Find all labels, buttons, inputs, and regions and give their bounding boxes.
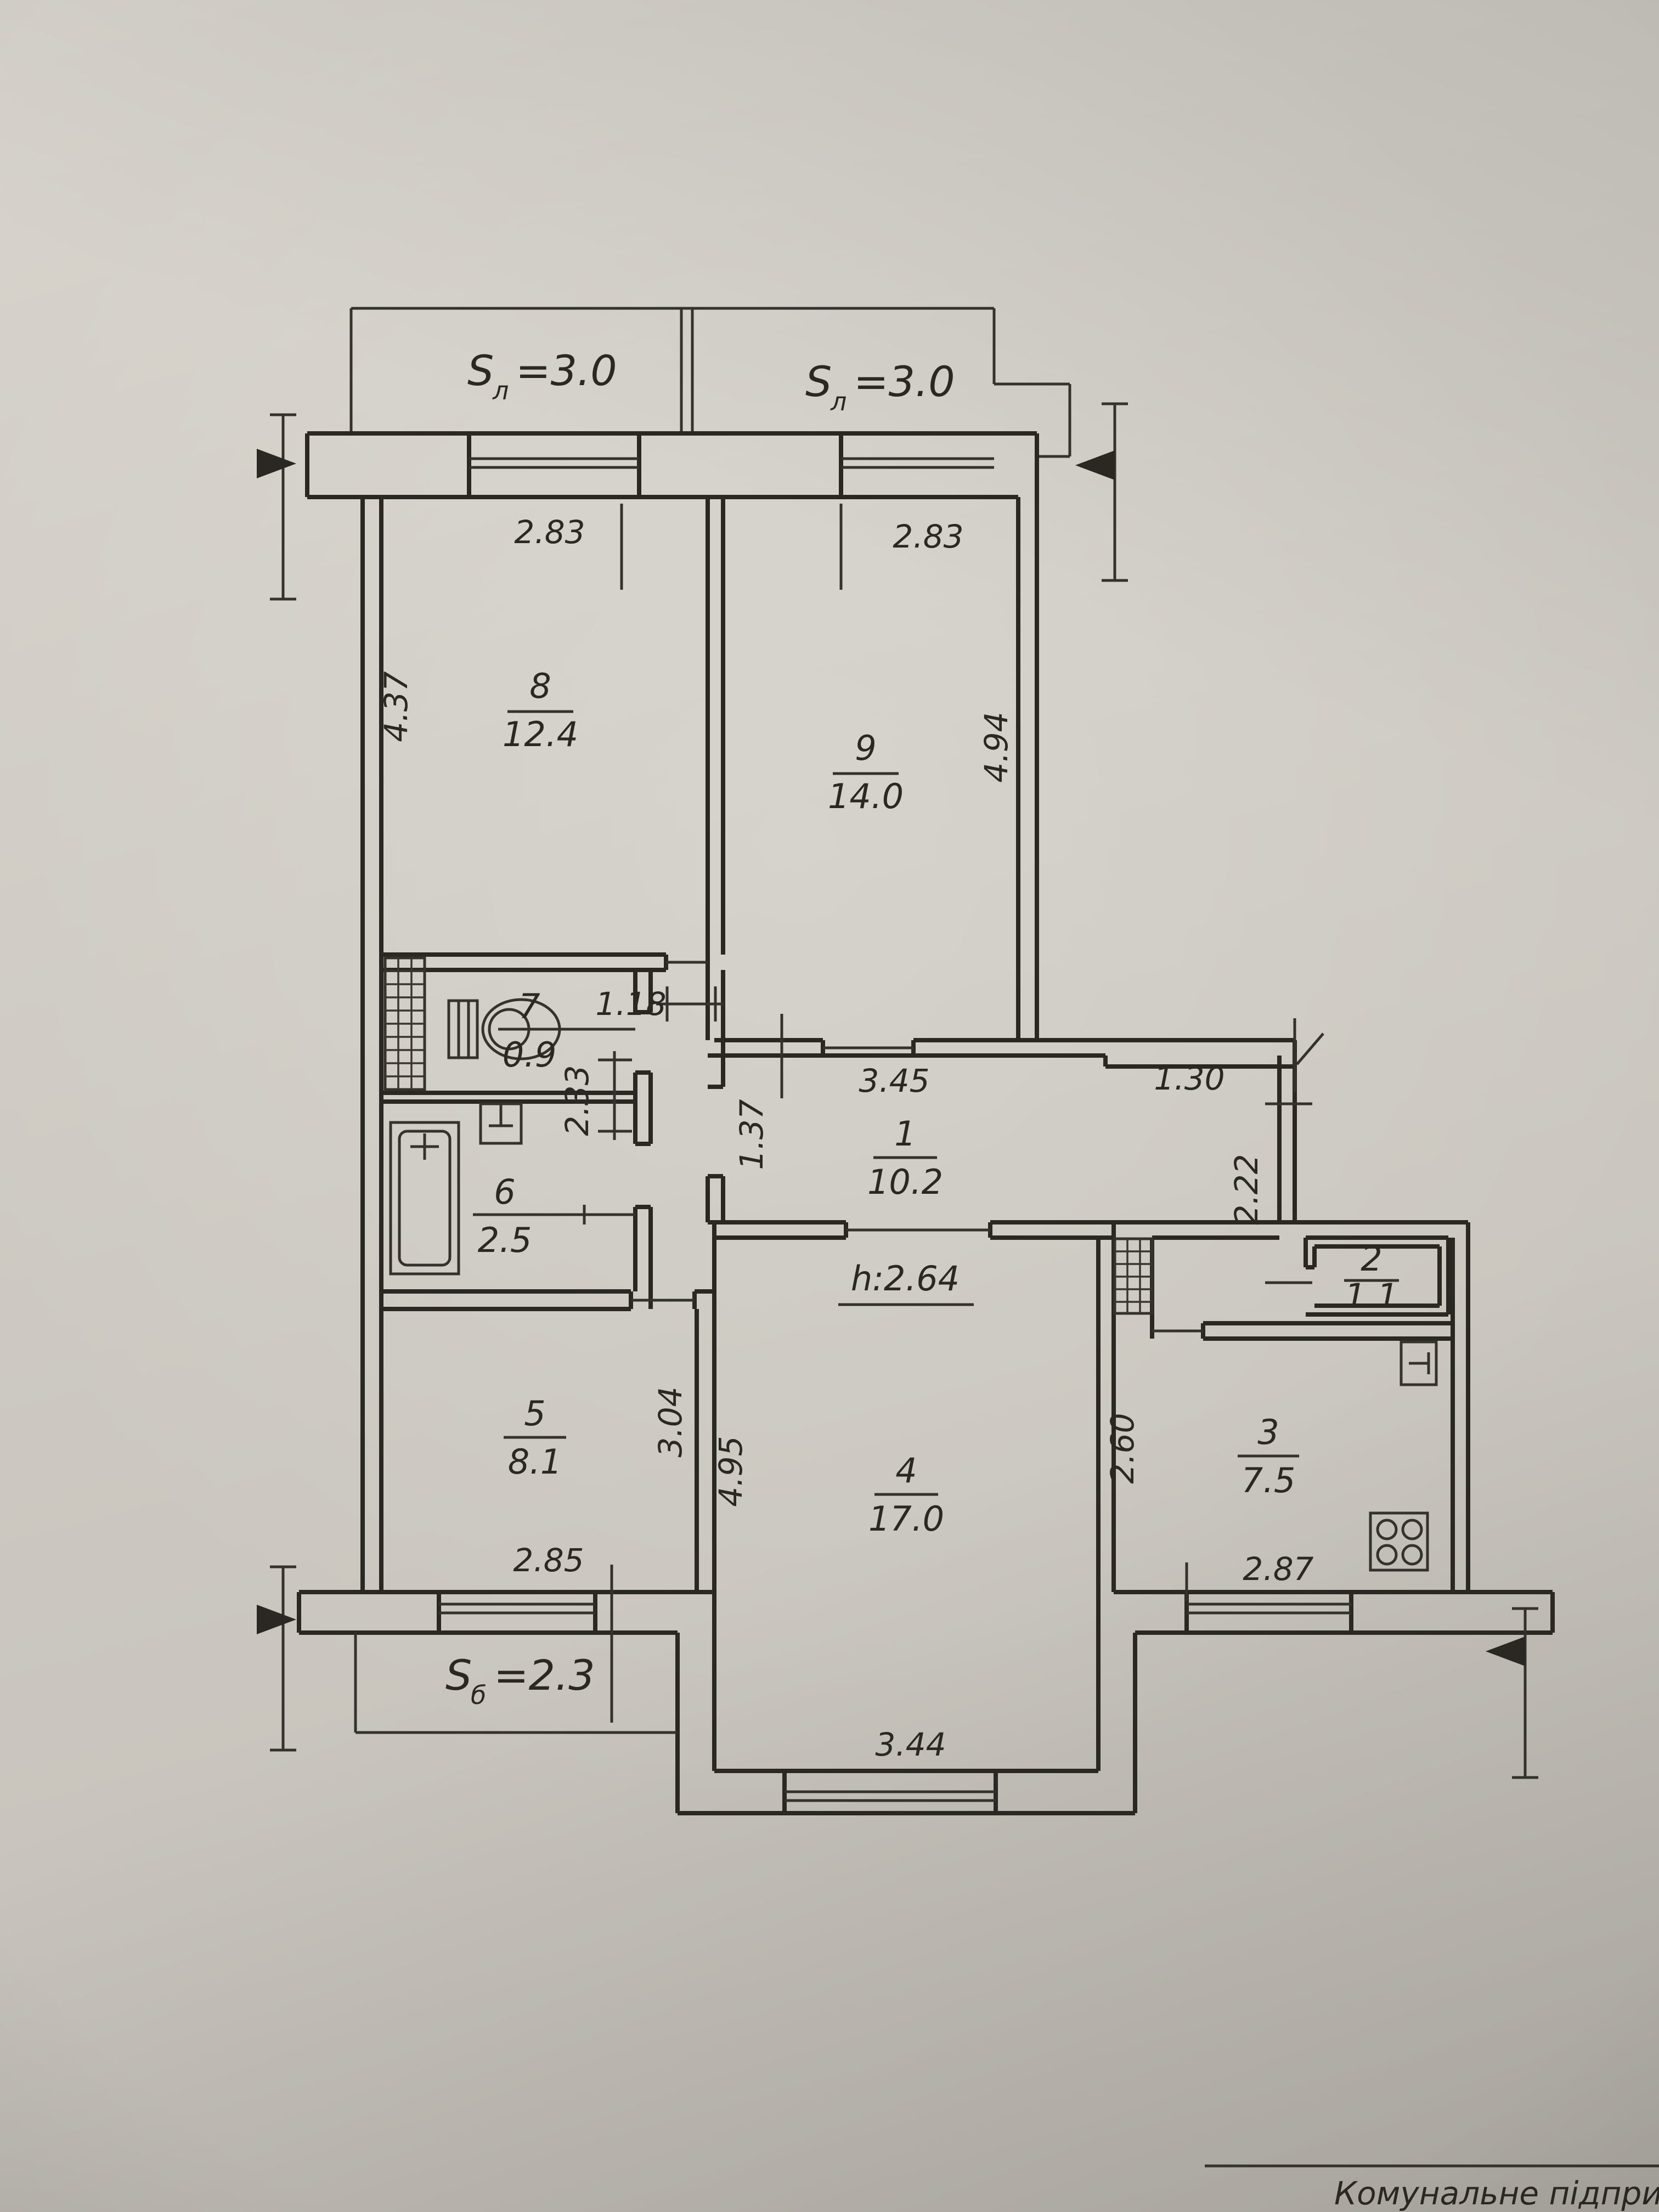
photographed-floor-plan: { "colors": { "paper": "#d0ccc5", "ink":… [0,0,1659,2212]
title-block: Комунальне підприємст [1205,2166,1659,2212]
window-room4 [785,1792,996,1801]
room-3-label: 3 7.5 [1238,1412,1299,1500]
svg-text:14.0: 14.0 [828,776,904,816]
dim-room4-depth: 4.95 [712,1436,749,1506]
dim-room4-window: 3.44 [875,1726,946,1763]
stove-icon [1370,1513,1427,1570]
svg-text:7.5: 7.5 [1242,1460,1296,1500]
loggia-left-label: S л =3.0 [467,346,617,405]
svg-text:2: 2 [1361,1239,1382,1279]
loggia-right-symbol: S [805,357,832,406]
svg-text:2.5: 2.5 [478,1220,532,1260]
svg-text:8: 8 [529,666,551,706]
svg-text:12.4: 12.4 [503,714,578,754]
loggia-left-subscript: л [492,376,509,405]
window-room8 [469,459,639,467]
room-2-label: 2 1.1 [1344,1239,1399,1316]
vent-shaft-icon [1115,1239,1152,1313]
dim-hall-right-width: 1.30 [1154,1060,1224,1097]
exterior-walls [299,433,1553,1813]
balcony-symbol: S [445,1651,472,1700]
dim-loggia-left: 2.83 [514,513,585,551]
room-1-label: 1 10.2 [867,1114,943,1202]
dim-hall-width: 3.45 [859,1062,929,1099]
dim-room5-depth: 3.04 [652,1386,689,1457]
balcony-value: =2.3 [494,1651,595,1700]
loggia-right-value: =3.0 [854,357,955,406]
section-arrow-bottom-left [257,1567,296,1750]
dimension-labels: 2.83 2.83 4.37 4.94 1.18 2.33 3.45 1.30 … [377,513,1314,1763]
svg-text:10.2: 10.2 [867,1162,943,1202]
dim-bath-depth: 2.33 [558,1065,596,1136]
loggia-left-symbol: S [467,346,494,395]
svg-text:8.1: 8.1 [508,1442,562,1482]
vent-shaft-icon [385,958,425,1090]
sink-icon [1401,1342,1436,1385]
dim-room9-depth: 4.94 [978,712,1015,782]
dimension-lines [537,504,1323,1723]
window-kitchen [1187,1604,1351,1613]
loggia-right-subscript: л [830,387,847,416]
room-7-label: 7 0.9 [498,986,561,1075]
svg-text:4: 4 [895,1451,917,1491]
title-block-text: Комунальне підприємст [1334,2175,1659,2212]
room-5-label: 5 8.1 [504,1393,566,1482]
dim-corridor: 1.18 [595,985,666,1023]
room-4-label: 4 17.0 [868,1451,944,1539]
balcony-subscript: б [471,1680,486,1710]
dim-loggia-right: 2.83 [893,518,963,555]
bathtub-icon [391,1122,459,1274]
window-room9 [841,459,994,467]
svg-text:7: 7 [518,986,540,1026]
balcony-label: S б =2.3 [445,1651,595,1710]
room-9-label: 9 14.0 [828,728,904,816]
washbasin-icon [481,1104,521,1143]
svg-text:5: 5 [524,1393,545,1434]
svg-text:1: 1 [894,1114,916,1154]
svg-text:3: 3 [1257,1412,1279,1452]
floor-plan-drawing: S л =3.0 S л =3.0 S б =2.3 8 12.4 9 14.0… [0,0,1659,2212]
room-8-label: 8 12.4 [503,666,578,754]
loggia-left-value: =3.0 [516,346,617,395]
svg-text:6: 6 [494,1172,515,1212]
svg-text:h:2.64: h:2.64 [851,1259,960,1299]
svg-text:9: 9 [855,728,876,768]
loggia-right-label: S л =3.0 [805,357,955,416]
dim-hall-right-depth: 2.22 [1228,1154,1265,1224]
dim-room5-window: 2.85 [513,1542,584,1579]
room-6-label: 6 2.5 [473,1172,537,1260]
svg-text:0.9: 0.9 [503,1035,557,1075]
section-arrow-top-right [1075,404,1128,580]
svg-text:1.1: 1.1 [1345,1276,1399,1316]
dim-hall-passage: 1.37 [733,1099,770,1170]
dim-kitchen-window: 2.87 [1243,1550,1313,1588]
section-arrow-top-left [257,415,296,599]
dim-kitchen-depth: 2.60 [1104,1413,1141,1483]
svg-text:17.0: 17.0 [868,1499,944,1539]
window-room5 [439,1604,595,1613]
ceiling-height-note: h:2.64 [838,1259,974,1305]
dim-room8-depth: 4.37 [377,671,415,742]
